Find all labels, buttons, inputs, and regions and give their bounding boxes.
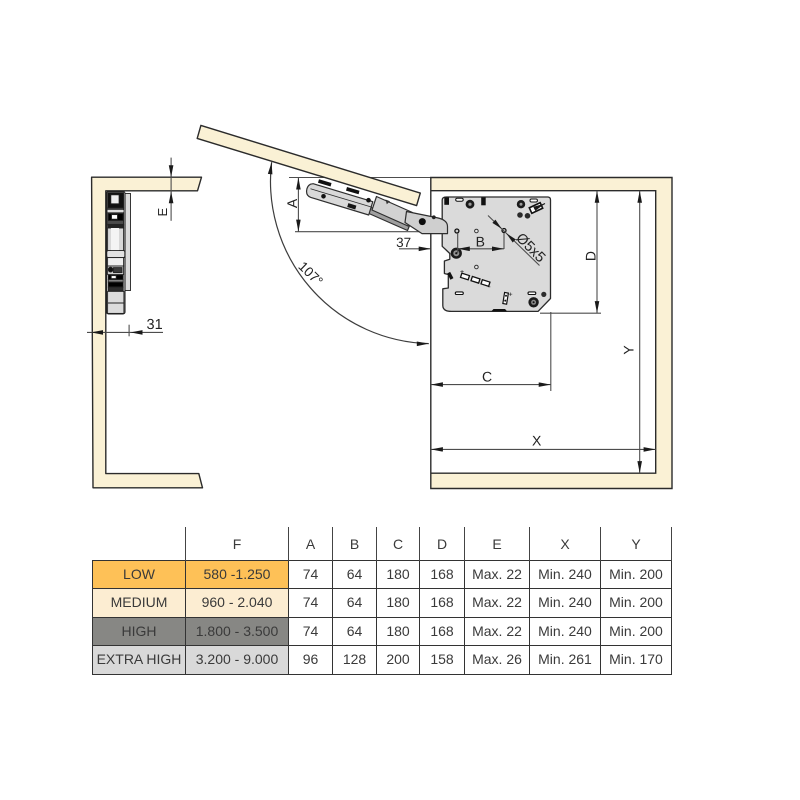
svg-text:+: +	[509, 292, 513, 299]
svg-text:E: E	[155, 208, 170, 217]
svg-text:37: 37	[396, 235, 411, 250]
svg-text:X: X	[532, 432, 542, 448]
svg-text:A: A	[284, 198, 300, 208]
svg-text:D: D	[583, 251, 599, 261]
svg-text:107°: 107°	[295, 259, 326, 289]
svg-text:B: B	[476, 234, 485, 250]
svg-text:+: +	[460, 269, 464, 276]
svg-text:-: -	[488, 282, 491, 291]
svg-text:Y: Y	[621, 345, 637, 355]
svg-text:C: C	[482, 368, 492, 384]
svg-text:31: 31	[147, 317, 163, 333]
